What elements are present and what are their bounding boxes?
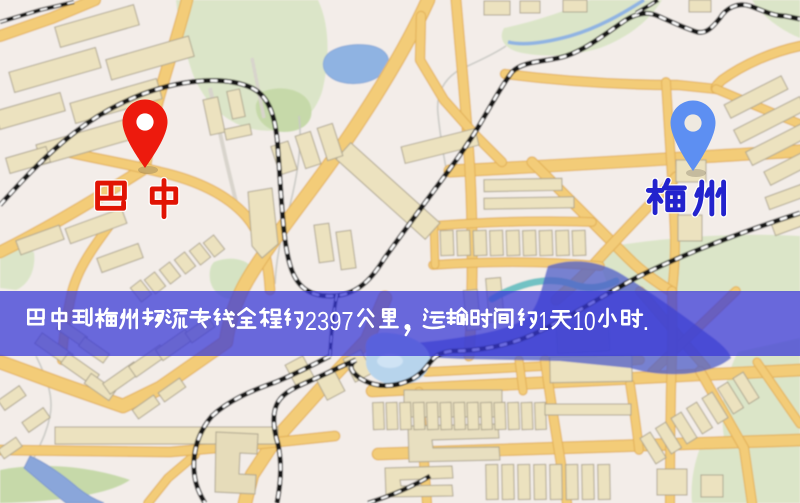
svg-text:1: 1 <box>539 306 550 336</box>
svg-text:10: 10 <box>572 306 595 336</box>
svg-text:.: . <box>642 306 649 336</box>
svg-text:2397: 2397 <box>305 306 354 336</box>
